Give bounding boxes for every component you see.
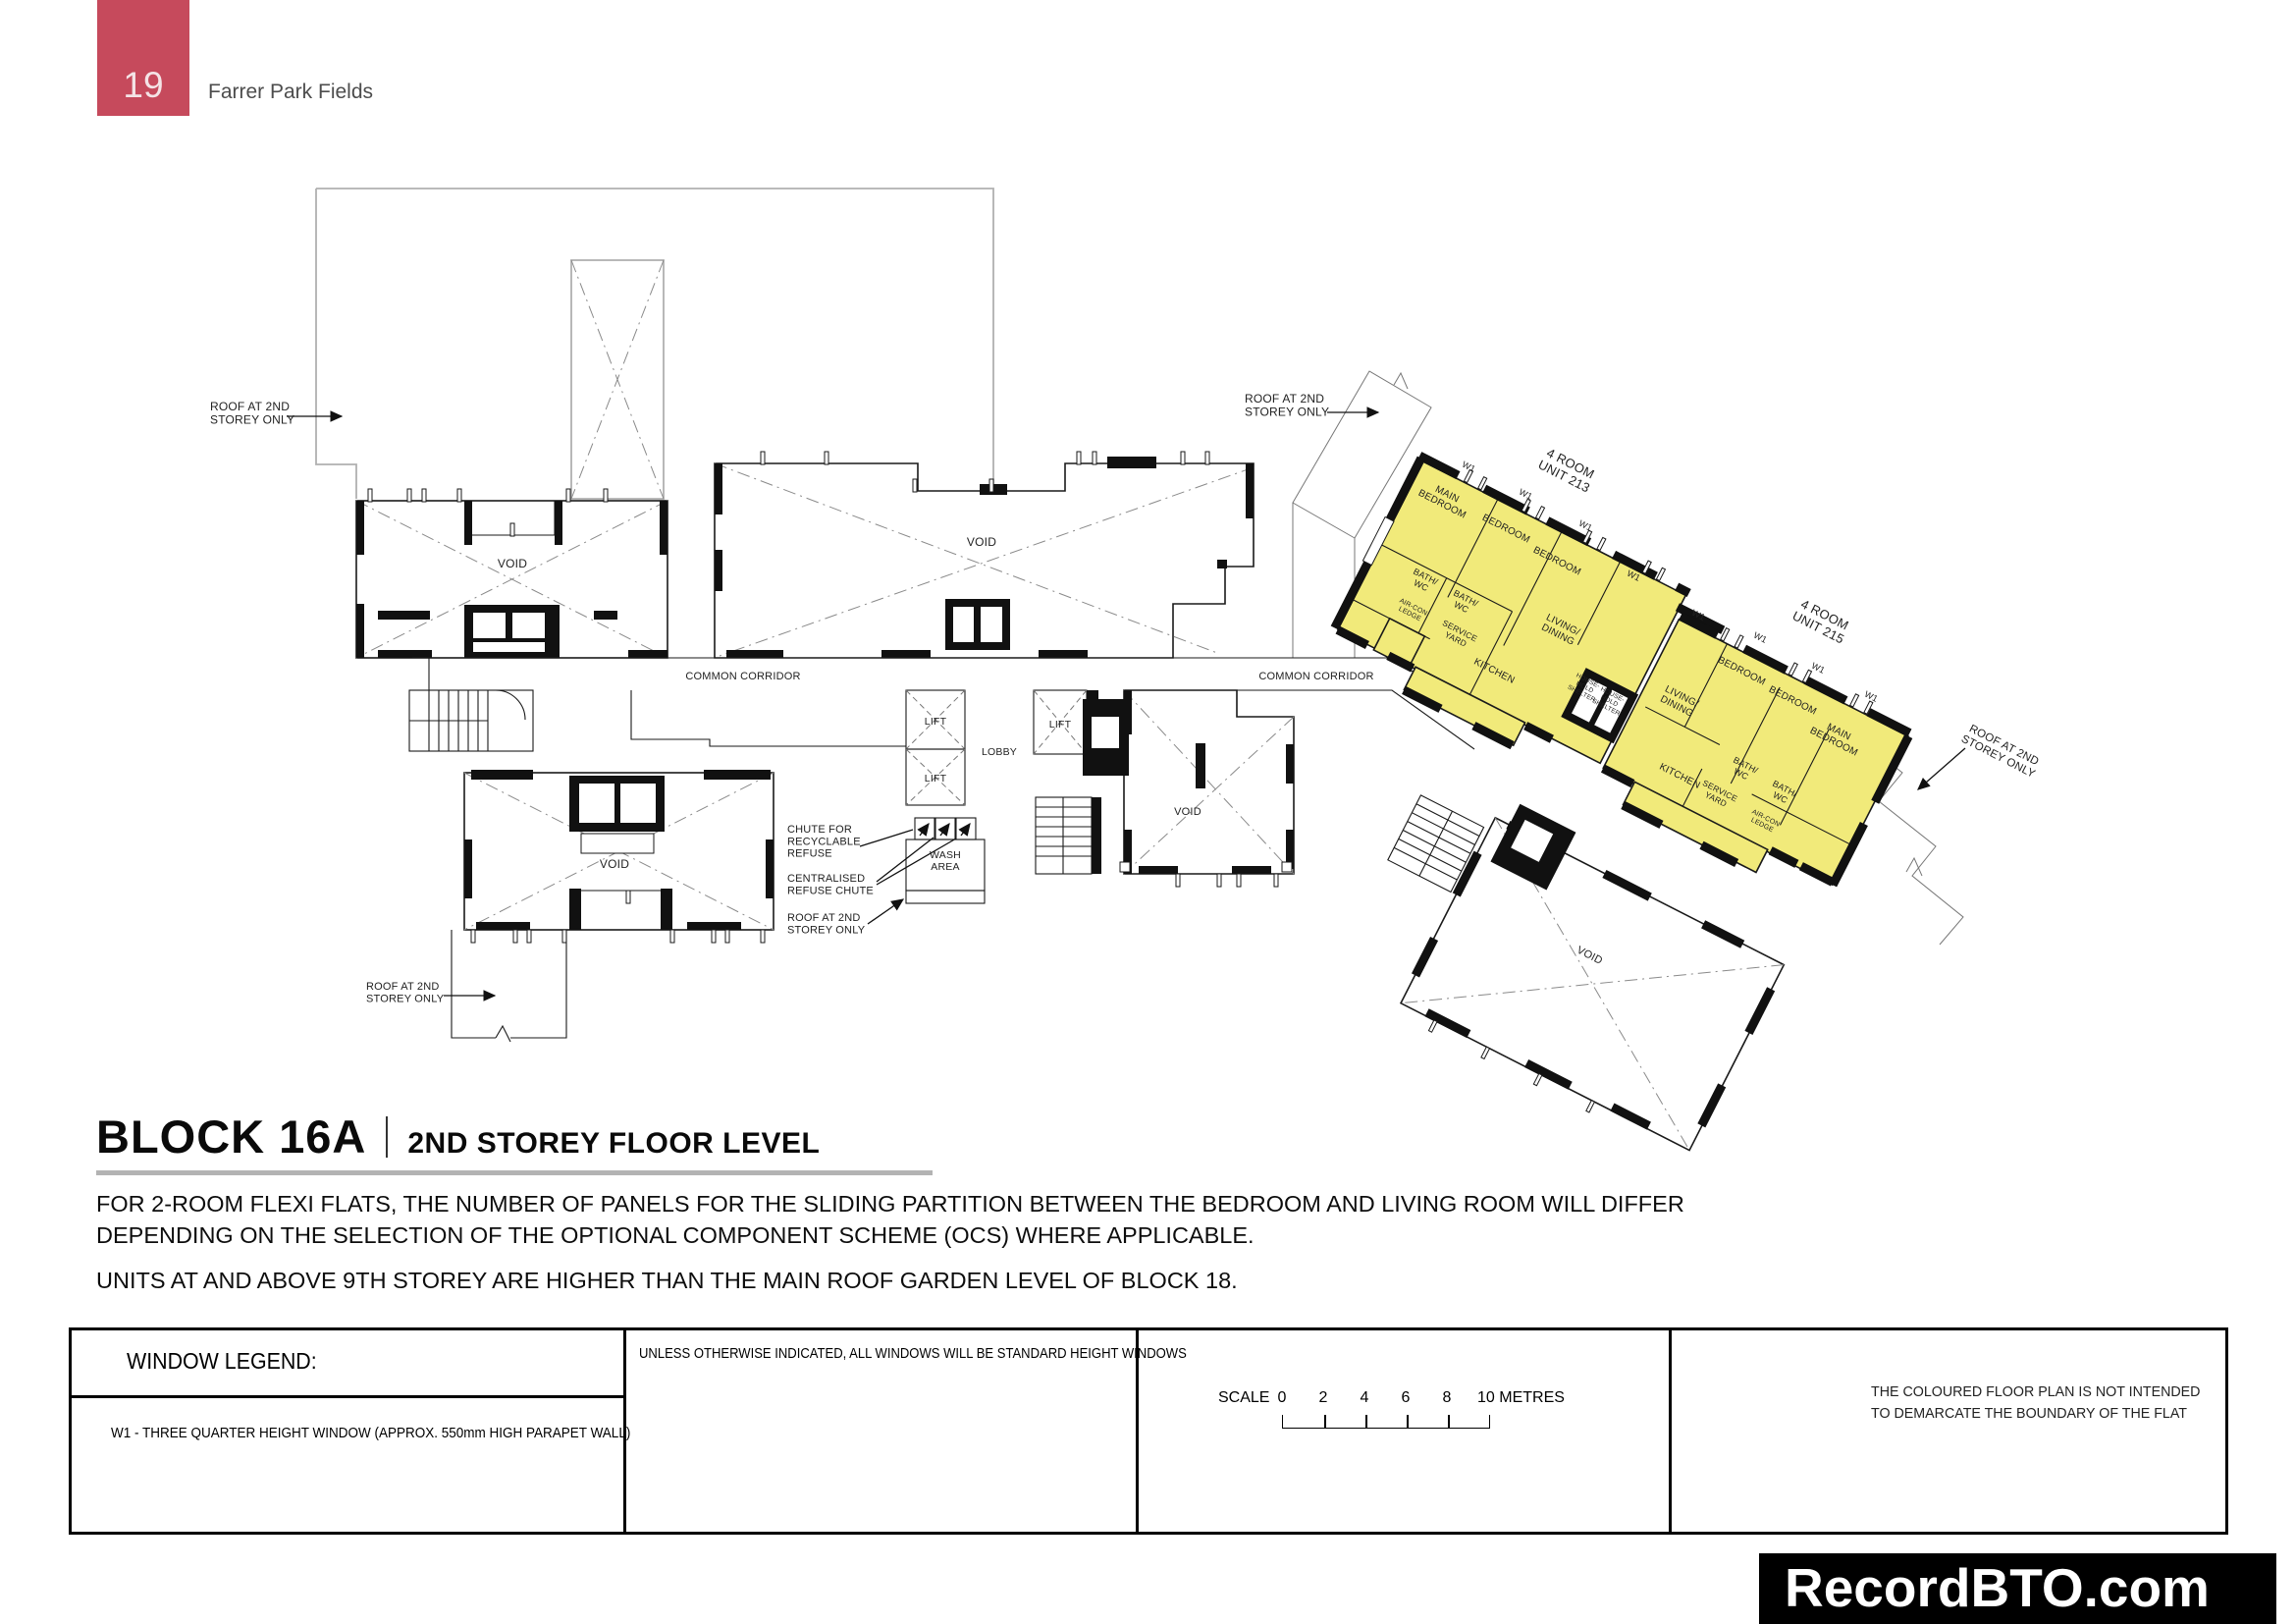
window-legend-w1: W1 - THREE QUARTER HEIGHT WINDOW (APPROX…: [111, 1425, 630, 1441]
plan-label-w1-3: W1: [1577, 518, 1594, 533]
plan-label-void-c: VOID: [600, 857, 629, 871]
title-divider: [386, 1116, 388, 1158]
rotated-wing: [1187, 445, 1930, 1165]
building-a: [356, 489, 667, 658]
note-flexi-flats: FOR 2-ROOM FLEXI FLATS, THE NUMBER OF PA…: [96, 1188, 1684, 1251]
legend-header-rule: [72, 1395, 626, 1398]
table-divider-3: [1669, 1330, 1672, 1532]
plan-label-refuse-chute: CENTRALISEDREFUSE CHUTE: [787, 873, 874, 896]
building-c: [452, 770, 774, 1042]
plan-label-void-d: VOID: [1174, 806, 1201, 818]
disclaimer-line-2: TO DEMARCATE THE BOUNDARY OF THE FLAT: [1871, 1405, 2187, 1422]
building-b: [715, 452, 1254, 658]
plan-label-roof-left: ROOF AT 2NDSTOREY ONLY: [210, 400, 294, 426]
plan-label-unit-215-title: 4 ROOMUNIT 215: [1790, 595, 1853, 646]
level-title: 2ND STOREY FLOOR LEVEL: [407, 1127, 820, 1161]
plan-label-w1-7: W1: [1810, 661, 1827, 676]
scale-tick-2: 2: [1311, 1389, 1335, 1407]
plan-label-roof-bottom-left: ROOF AT 2NDSTOREY ONLY: [366, 981, 445, 1004]
roof-outline-top-left: [316, 189, 993, 499]
plan-label-roof-far-right: ROOF AT 2NDSTOREY ONLY: [1959, 722, 2043, 781]
page-title: BLOCK 16A 2ND STOREY FLOOR LEVEL: [96, 1110, 820, 1164]
plan-label-void-a: VOID: [498, 557, 527, 570]
scale-tick-6: 6: [1394, 1389, 1417, 1407]
title-rule: [96, 1170, 933, 1175]
plan-label-corridor-2: COMMON CORRIDOR: [1258, 671, 1373, 682]
roof-stub-bottom-left: [452, 930, 566, 1038]
coloured-plan-disclaimer: THE COLOURED FLOOR PLAN IS NOT INTENDED …: [1871, 1381, 2200, 1425]
plan-label-lift-3: LIFT: [1049, 719, 1072, 731]
legend-table: WINDOW LEGEND: W1 - THREE QUARTER HEIGHT…: [69, 1327, 2228, 1535]
scale-unit: 10 METRES: [1477, 1389, 1565, 1407]
plan-label-void-b: VOID: [967, 535, 996, 549]
window-ticks-d: [1176, 874, 1278, 887]
scale-ruler: [1282, 1415, 1490, 1429]
watermark: RecordBTO.com: [1759, 1553, 2276, 1624]
note-storey: UNITS AT AND ABOVE 9TH STOREY ARE HIGHER…: [96, 1265, 1238, 1296]
scale-tick-4: 4: [1353, 1389, 1376, 1407]
document-page: 19 Farrer Park Fields: [0, 0, 2296, 1624]
plan-label-chute-recyclable: CHUTE FORRECYCLABLEREFUSE: [787, 824, 861, 860]
plan-label-unit-213-title: 4 ROOMUNIT 213: [1536, 444, 1599, 495]
plan-label-w1-6: W1: [1752, 630, 1769, 645]
disclaimer-line-1: THE COLOURED FLOOR PLAN IS NOT INTENDED: [1871, 1383, 2200, 1400]
note-line-1: FOR 2-ROOM FLEXI FLATS, THE NUMBER OF PA…: [96, 1191, 1684, 1217]
window-legend-title: WINDOW LEGEND:: [127, 1348, 317, 1375]
plan-label-lift-2: LIFT: [925, 773, 947, 785]
scale-label: SCALE: [1218, 1389, 1269, 1407]
plan-label-lift-1: LIFT: [925, 716, 947, 728]
plan-label-wash-area: WASHAREA: [930, 849, 961, 873]
plan-label-roof-top-right: ROOF AT 2NDSTOREY ONLY: [1245, 392, 1329, 418]
note-line-2: DEPENDING ON THE SELECTION OF THE OPTION…: [96, 1222, 1255, 1248]
plan-label-corridor-1: COMMON CORRIDOR: [685, 671, 800, 682]
plan-label-w1-1: W1: [1461, 460, 1477, 474]
block-title: BLOCK 16A: [96, 1110, 366, 1164]
scale-tick-0: 0: [1270, 1389, 1294, 1407]
windows-note: UNLESS OTHERWISE INDICATED, ALL WINDOWS …: [639, 1346, 1134, 1362]
building-d: [1083, 690, 1294, 887]
stairs-left: [409, 658, 533, 751]
scale-tick-8: 8: [1435, 1389, 1459, 1407]
plan-label-roof-wash: ROOF AT 2NDSTOREY ONLY: [787, 912, 866, 936]
plan-label-w1-8: W1: [1863, 689, 1880, 704]
plan-label-w1-2: W1: [1518, 487, 1534, 502]
plan-label-lobby: LOBBY: [982, 746, 1017, 758]
window-ticks-c: [471, 930, 765, 943]
